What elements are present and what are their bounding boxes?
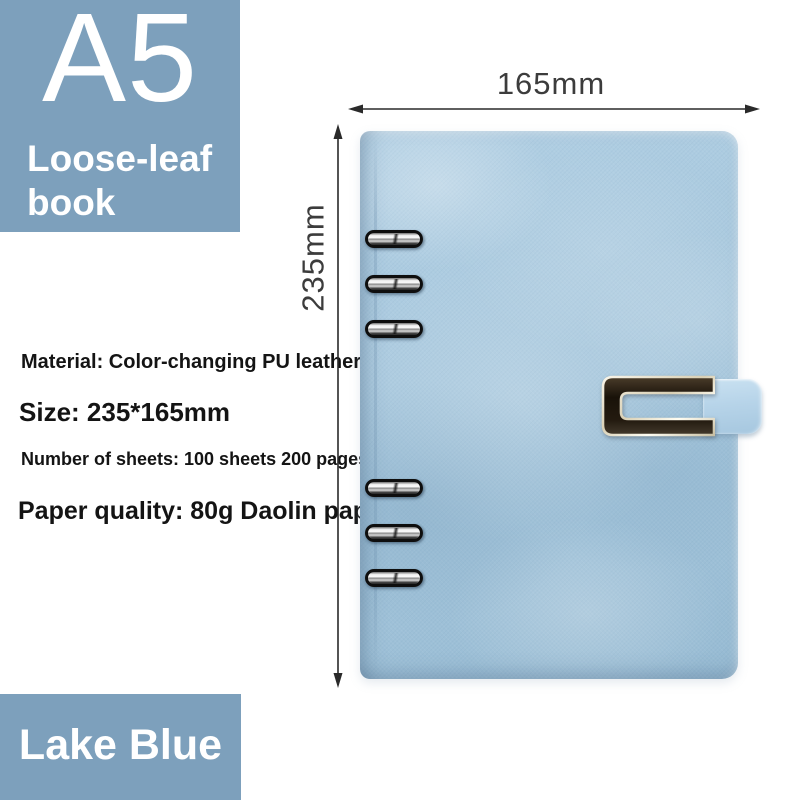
product-type-line1: Loose-leaf xyxy=(27,138,212,180)
binder-ring-icon xyxy=(365,230,423,248)
binder-ring-icon xyxy=(365,569,423,587)
color-name: Lake Blue xyxy=(19,721,222,774)
binder-ring-icon xyxy=(365,320,423,338)
spine-crease xyxy=(374,136,377,674)
width-dimension-label: 165mm xyxy=(451,66,651,102)
spec-size: Size: 235*165mm xyxy=(19,397,230,428)
size-badge-label: A5 xyxy=(6,0,234,133)
product-image: A5 Loose-leaf book Material: Color-chang… xyxy=(0,0,800,800)
binder-ring-icon xyxy=(365,275,423,293)
spec-sheet-count: Number of sheets: 100 sheets 200 pages xyxy=(21,449,368,470)
height-dimension-arrow-icon xyxy=(330,124,346,688)
product-type-line2: book xyxy=(27,182,115,224)
width-dimension-arrow-icon xyxy=(348,102,760,116)
color-badge: Lake Blue xyxy=(0,694,241,800)
binder-ring-icon xyxy=(365,479,423,497)
spec-material: Material: Color-changing PU leather xyxy=(21,351,361,374)
size-badge: A5 Loose-leaf book xyxy=(0,0,240,232)
height-dimension-label: 235mm xyxy=(296,198,327,318)
clasp-metal-frame-icon xyxy=(601,375,715,437)
binder-ring-icon xyxy=(365,524,423,542)
